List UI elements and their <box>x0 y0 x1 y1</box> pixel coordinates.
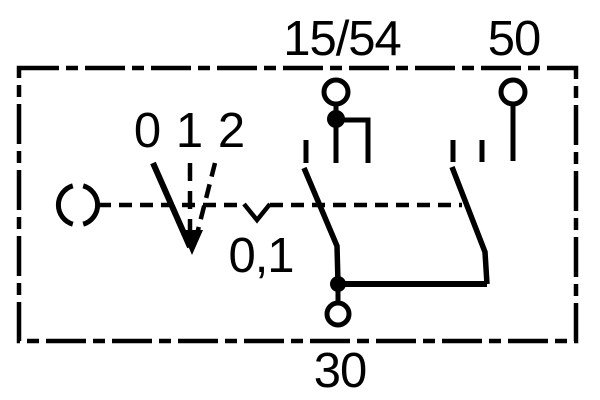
actuator-knob-left-arc <box>58 186 72 224</box>
position-label-0: 0 <box>134 104 160 158</box>
terminal-30-connector <box>327 303 349 325</box>
terminal-50-connector <box>501 80 525 104</box>
schematic-canvas: 15/54 50 30 0 1 2 0,1 <box>0 0 600 400</box>
switch-blade-left <box>304 168 338 283</box>
terminal-label-15-54: 15/54 <box>283 12 401 66</box>
momentary-position-label: 0,1 <box>228 229 293 283</box>
position-label-1: 1 <box>176 104 202 158</box>
position-label-2: 2 <box>218 104 244 158</box>
position-arrowhead-icon <box>181 230 203 255</box>
terminal-label-50: 50 <box>488 12 541 66</box>
terminal-15-54-connector <box>324 80 348 104</box>
schematic-page: 15/54 50 30 0 1 2 0,1 <box>0 0 600 400</box>
actuator-knob-right-arc <box>83 186 97 224</box>
switch-blade-right <box>452 167 487 284</box>
detent-notch-icon <box>244 204 270 220</box>
terminal-label-30: 30 <box>314 344 367 398</box>
position-stroke-2 <box>196 163 215 238</box>
